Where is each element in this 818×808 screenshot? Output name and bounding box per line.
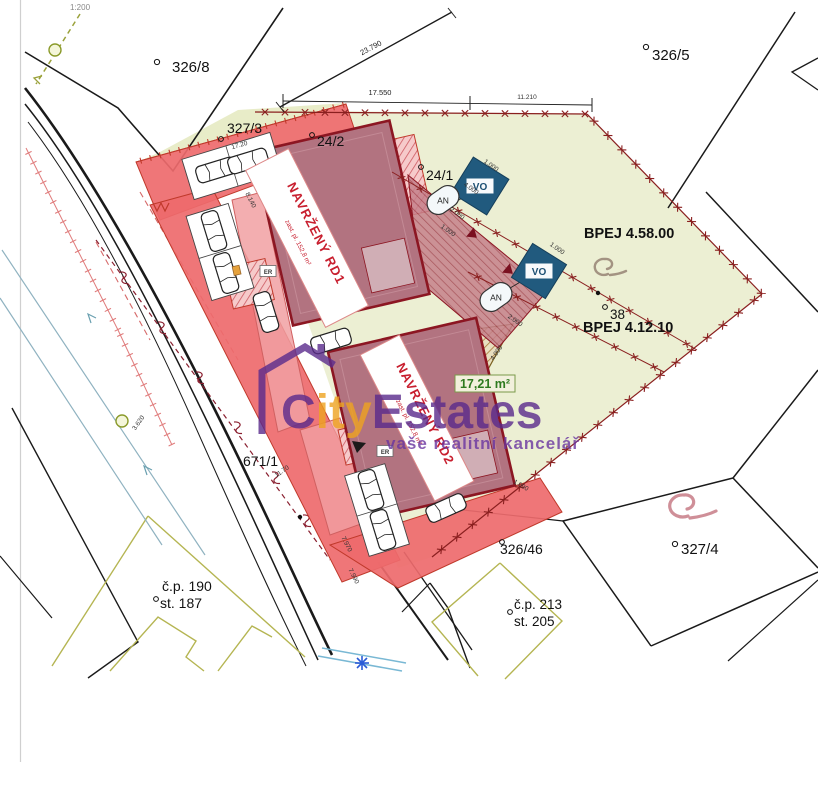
parcel-label-327-4: 327/4 [681,541,719,558]
er-box-icon: ER [260,266,276,277]
scale-note: 1:200 [70,3,91,12]
point-marker-icon [298,515,302,519]
tree-circle-icon [116,415,128,427]
svg-text:23.790: 23.790 [359,38,383,57]
site-plan-map: 1:200 [0,0,818,803]
svg-text:17.550: 17.550 [369,88,392,97]
dimension-lines [276,8,592,112]
svg-text:11.210: 11.210 [517,94,537,101]
watermark-tagline: vaše realitní kancelář [386,434,580,453]
parcel-label-cp190: č.p. 190 [162,578,212,594]
er-label: ER [264,270,273,276]
tree-circle-icon [49,44,61,56]
parcel-label-st205: st. 205 [514,614,555,629]
vo-label: VO [532,267,547,278]
spiral-symbol-icon [670,495,716,518]
soil-label-bpej-458: BPEJ 4.58.00 [584,226,674,242]
parcel-label-24-2: 24/2 [317,133,344,149]
parcel-label-cp213: č.p. 213 [514,597,562,612]
parcel-label-326-5: 326/5 [652,47,690,64]
marker-square-icon [232,265,241,275]
watermark-brand: CityEstates [281,386,542,439]
survey-star-icon [355,656,369,670]
parcel-label-st187: st. 187 [160,595,202,611]
soil-label-bpej-412: BPEJ 4.12.10 [583,320,673,336]
parcel-label-326-46: 326/46 [500,541,543,557]
parcel-label-326-8: 326/8 [172,59,210,76]
point-marker-icon [596,291,600,295]
parcel-label-327-3: 327/3 [227,120,262,136]
an-label: AN [437,196,449,206]
parcel-label-24-1: 24/1 [426,167,453,183]
site-plan-page: { "map": { "scale": "1:200" }, "watermar… [0,0,818,803]
svg-text:3.620: 3.620 [131,414,146,432]
an-label: AN [490,293,502,303]
parcel-label-671-1: 671/1 [243,453,278,469]
